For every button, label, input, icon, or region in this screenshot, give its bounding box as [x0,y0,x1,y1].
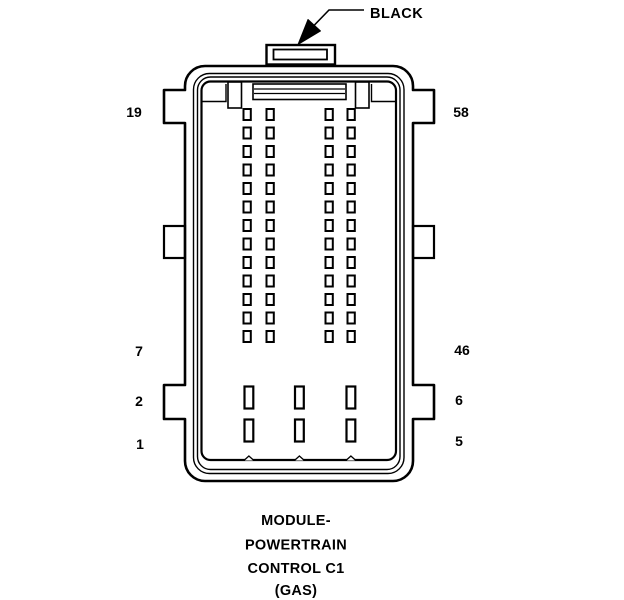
connector-pinout-figure: BLACK 19 [0,0,624,600]
pin-cavity-small [267,331,274,342]
pin-cavity-small [267,294,274,305]
pin-cavity-small [348,331,355,342]
pin-cavity-large [295,420,304,442]
connector-lock-tab [267,45,336,65]
pin-label-bottom-right: 5 [455,433,463,449]
pin-cavity-small [244,294,251,305]
cavity-top-bar [253,84,346,100]
connector-diagram-canvas: BLACK 19 [0,0,624,600]
pin-label-middle-right: 46 [454,342,470,358]
pin-cavity-small [244,202,251,213]
pin-label-lower-left: 2 [135,393,143,409]
pin-cavity-small [244,109,251,120]
pin-cavity-small [326,128,333,139]
pin-cavity-large [245,387,254,409]
pin-cavity-small [244,239,251,250]
pin-cavity-small [326,202,333,213]
pin-cavity-small [348,276,355,287]
pin-cavity-small [244,165,251,176]
pin-cavity-small [326,239,333,250]
connector-color-label: BLACK [370,6,423,22]
pin-cavity-large [347,420,356,442]
pin-label-top-left: 19 [126,104,142,120]
pin-cavity-small [348,109,355,120]
pin-cavity-small [244,183,251,194]
caption-line-3: CONTROL C1 [248,561,345,577]
pin-cavity-small [348,220,355,231]
pin-cavity-small [267,165,274,176]
pin-cavity-small [326,313,333,324]
cavity-key-block-right [356,82,370,108]
pin-cavity-small [326,165,333,176]
pin-cavity-small [267,146,274,157]
caption-line-1: MODULE- [261,513,331,529]
pin-cavity-small [326,146,333,157]
pin-cavity-small [267,183,274,194]
pin-cavity-small [267,276,274,287]
pin-cavity-small [348,165,355,176]
pin-cavity-small [244,220,251,231]
pin-cavity-small [326,331,333,342]
pin-cavity-small [244,276,251,287]
pin-cavity-small [326,183,333,194]
callout-leader-line [314,10,365,26]
pin-cavity-large [347,387,356,409]
pin-cavity-small [348,128,355,139]
side-tab-left-middle [164,226,185,258]
pin-cavity-small [244,257,251,268]
pin-cavity-small [326,220,333,231]
figure-caption: MODULE- POWERTRAIN CONTROL C1 (GAS) [245,513,347,599]
color-callout: BLACK [298,6,423,45]
pin-cavity-small [326,276,333,287]
caption-line-2: POWERTRAIN [245,538,347,554]
side-tab-right-middle [413,226,434,258]
lock-tab-outer [267,45,336,65]
pin-cavity-small [267,202,274,213]
caption-line-4: (GAS) [275,583,318,599]
pin-label-bottom-left: 1 [136,436,144,452]
pin-label-middle-left: 7 [135,343,143,359]
pin-cavity-small [244,313,251,324]
pin-label-top-right: 58 [453,104,469,120]
pin-cavity-small [267,313,274,324]
pin-cavity-large [245,420,254,442]
pin-cavity-small [348,239,355,250]
pin-cavity-small [348,146,355,157]
pin-cavity-small [348,257,355,268]
pin-cavity-small [326,109,333,120]
pin-cavity-small [348,294,355,305]
pin-cavity-small [244,128,251,139]
pin-cavity-small [267,128,274,139]
pin-cavity-small [326,294,333,305]
pin-cavity-small [267,220,274,231]
pin-cavity-small [348,202,355,213]
pin-cavity-small [267,257,274,268]
pin-label-lower-right: 6 [455,392,463,408]
pin-cavity-large [295,387,304,409]
pin-cavity-small [348,183,355,194]
pin-cavity-small [267,109,274,120]
pin-cavity-small [348,313,355,324]
cavity-key-block-left [228,82,242,108]
pin-cavity-small [326,257,333,268]
pin-cavity-small [244,331,251,342]
pin-cavity-small [267,239,274,250]
pin-cavity-small [244,146,251,157]
